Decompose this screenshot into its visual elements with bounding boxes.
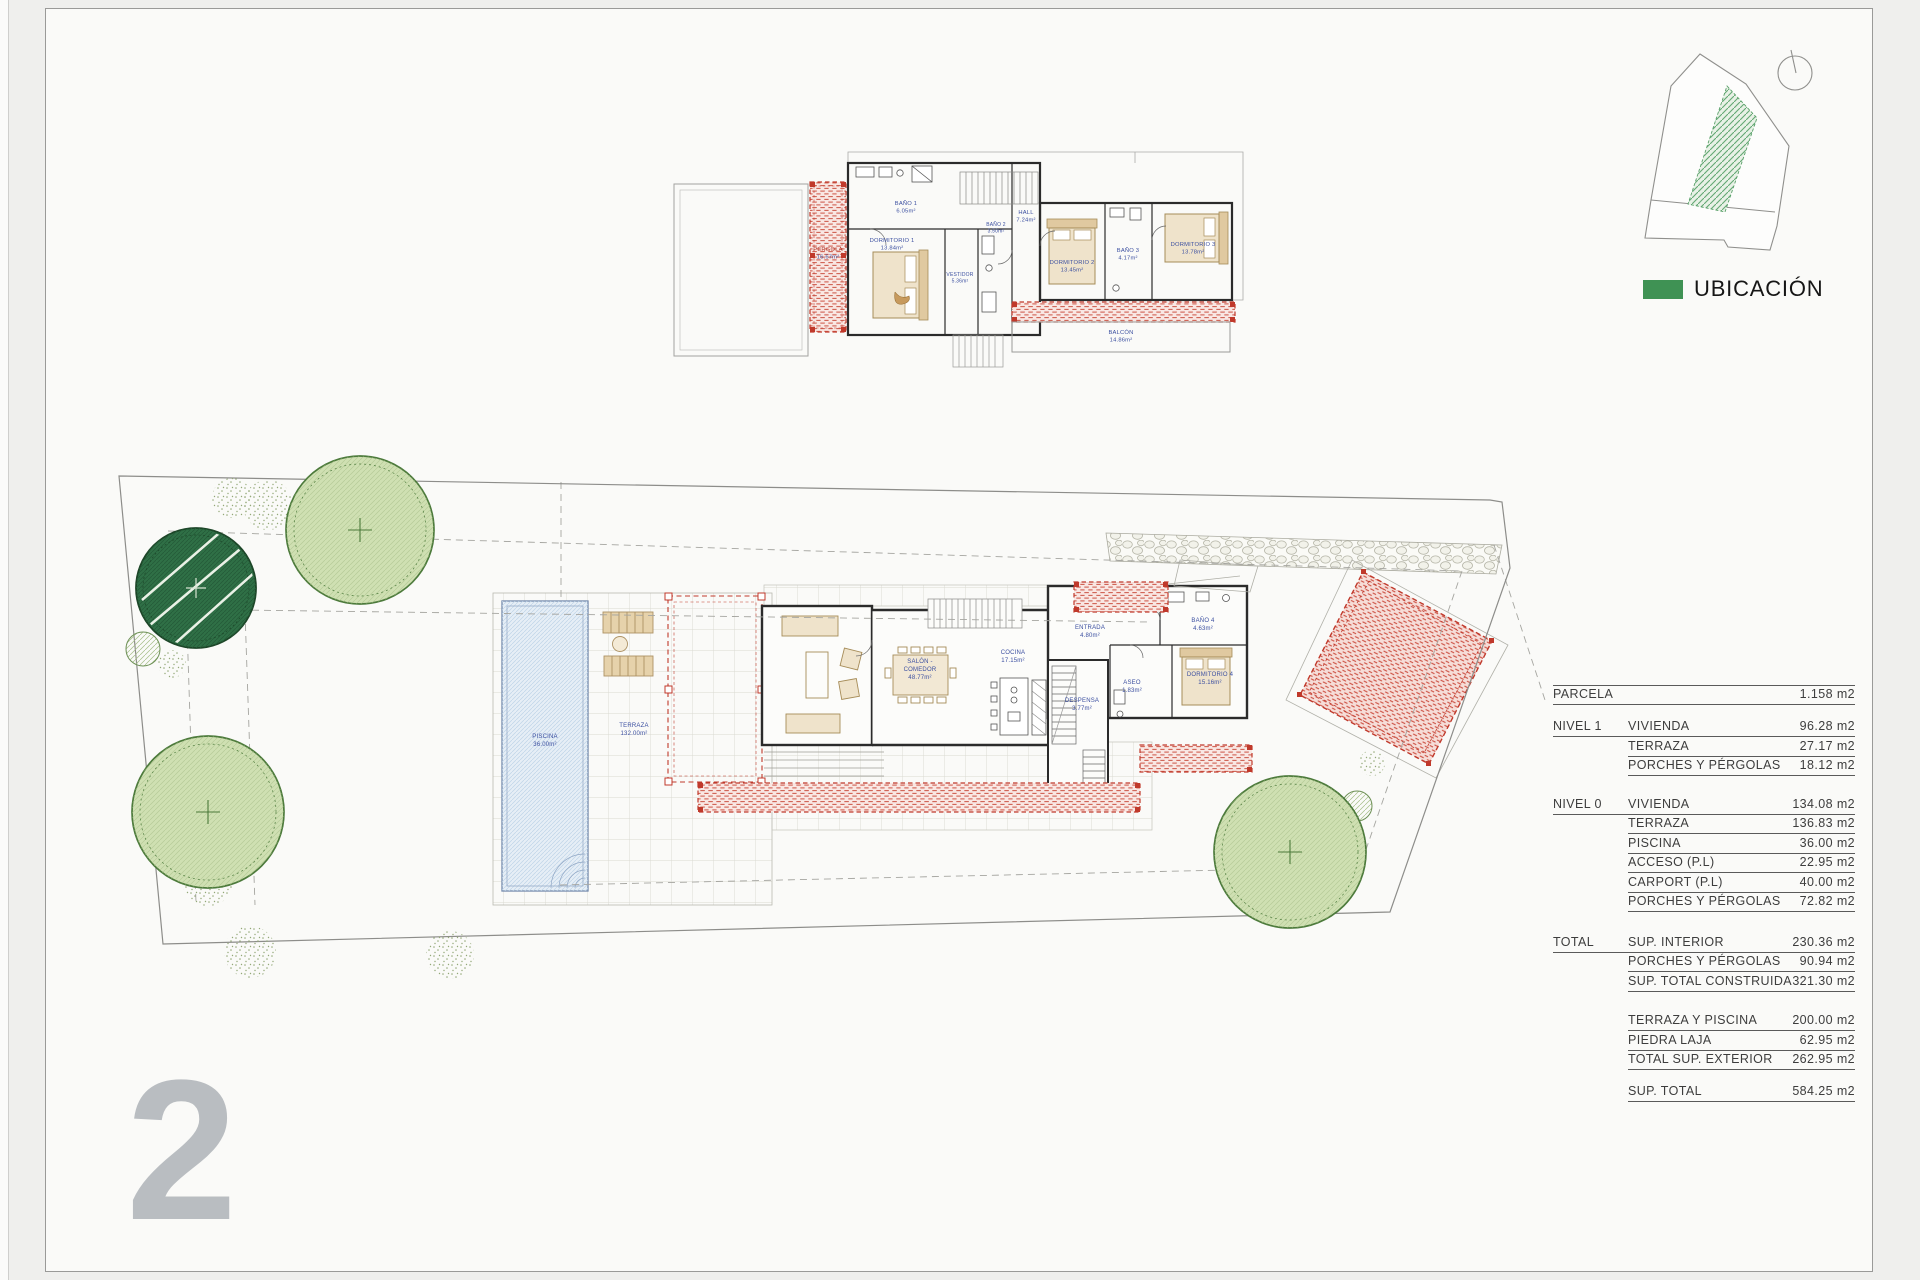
row-item: CARPORT (P.L) — [1628, 875, 1723, 889]
areas-table: PARCELA1.158 m2 NIVEL 1VIVIENDA96.28 m2 … — [1553, 685, 1855, 1102]
row-group — [1553, 893, 1628, 913]
row-value: 321.30 m2 — [1792, 974, 1855, 988]
row-item: ACCESO (P.L) — [1628, 855, 1715, 869]
row-item: PORCHES Y PÉRGOLAS — [1628, 954, 1781, 968]
row-group — [1553, 757, 1628, 777]
row-group — [1553, 953, 1628, 973]
plan-sheet-page: PÉRGOLA16.67m² BAÑO 16.05m² DORMITORIO 1… — [0, 0, 1920, 1280]
row-value: 18.12 m2 — [1800, 758, 1855, 772]
table-row: CARPORT (P.L)40.00 m2 — [1553, 873, 1855, 893]
row-value: 22.95 m2 — [1800, 855, 1855, 869]
row-value: 584.25 m2 — [1792, 1084, 1855, 1098]
table-row: PARCELA1.158 m2 — [1553, 685, 1855, 705]
row-group — [1553, 815, 1628, 835]
ubicacion-swatch-icon — [1643, 280, 1683, 299]
row-value: 1.158 m2 — [1800, 687, 1855, 701]
row-value: 136.83 m2 — [1792, 816, 1855, 830]
ubicacion-label: UBICACIÓN — [1694, 276, 1823, 302]
table-row: TERRAZA136.83 m2 — [1553, 815, 1855, 835]
page-margin-strip — [0, 0, 9, 1280]
table-row: PORCHES Y PÉRGOLAS90.94 m2 — [1553, 953, 1855, 973]
row-item: VIVIENDA — [1628, 797, 1690, 811]
table-row: NIVEL 0VIVIENDA134.08 m2 — [1553, 795, 1855, 815]
row-value: 200.00 m2 — [1792, 1013, 1855, 1027]
row-group — [1553, 1031, 1628, 1051]
row-group — [1553, 1051, 1628, 1071]
row-group — [1553, 737, 1628, 757]
row-item: SUP. TOTAL CONSTRUIDA — [1628, 974, 1792, 988]
table-row: NIVEL 1VIVIENDA96.28 m2 — [1553, 718, 1855, 738]
row-group — [1553, 834, 1628, 854]
row-item: PISCINA — [1628, 836, 1681, 850]
row-item: TERRAZA — [1628, 816, 1689, 830]
table-row: ACCESO (P.L)22.95 m2 — [1553, 854, 1855, 874]
table-row: TOTALSUP. INTERIOR230.36 m2 — [1553, 933, 1855, 953]
table-row: SUP. TOTAL584.25 m2 — [1553, 1082, 1855, 1102]
row-item: PORCHES Y PÉRGOLAS — [1628, 758, 1781, 772]
row-item: SUP. TOTAL — [1628, 1084, 1702, 1098]
row-value: 27.17 m2 — [1800, 739, 1855, 753]
row-item: TERRAZA — [1628, 739, 1689, 753]
row-item: PIEDRA LAJA — [1628, 1033, 1712, 1047]
row-group — [1553, 854, 1628, 874]
table-row: PORCHES Y PÉRGOLAS72.82 m2 — [1553, 893, 1855, 913]
row-group: TOTAL — [1553, 933, 1628, 952]
row-group — [1553, 1012, 1628, 1032]
row-item: VIVIENDA — [1628, 719, 1690, 733]
row-value: 230.36 m2 — [1792, 935, 1855, 949]
row-value: 36.00 m2 — [1800, 836, 1855, 850]
table-row: TOTAL SUP. EXTERIOR262.95 m2 — [1553, 1051, 1855, 1071]
row-value: 96.28 m2 — [1800, 719, 1855, 733]
row-value: 72.82 m2 — [1800, 894, 1855, 908]
row-group: NIVEL 0 — [1553, 795, 1628, 814]
row-item: PORCHES Y PÉRGOLAS — [1628, 894, 1781, 908]
row-value: 62.95 m2 — [1800, 1033, 1855, 1047]
table-row: SUP. TOTAL CONSTRUIDA321.30 m2 — [1553, 972, 1855, 992]
row-group — [1553, 1082, 1628, 1102]
sheet-number: 2 — [126, 1051, 237, 1251]
row-item: SUP. INTERIOR — [1628, 935, 1724, 949]
row-group — [1553, 972, 1628, 992]
table-row: TERRAZA Y PISCINA200.00 m2 — [1553, 1012, 1855, 1032]
row-item: TOTAL SUP. EXTERIOR — [1628, 1052, 1773, 1066]
row-group: PARCELA — [1553, 686, 1628, 704]
table-row: PISCINA36.00 m2 — [1553, 834, 1855, 854]
table-row: PORCHES Y PÉRGOLAS18.12 m2 — [1553, 757, 1855, 777]
row-group — [1553, 873, 1628, 893]
row-group: NIVEL 1 — [1553, 718, 1628, 737]
table-row: PIEDRA LAJA62.95 m2 — [1553, 1031, 1855, 1051]
row-value: 134.08 m2 — [1792, 797, 1855, 811]
row-value: 90.94 m2 — [1800, 954, 1855, 968]
row-item: TERRAZA Y PISCINA — [1628, 1013, 1757, 1027]
legend-row: UBICACIÓN — [1643, 276, 1823, 302]
row-value: 262.95 m2 — [1792, 1052, 1855, 1066]
row-value: 40.00 m2 — [1800, 875, 1855, 889]
table-row: TERRAZA27.17 m2 — [1553, 737, 1855, 757]
